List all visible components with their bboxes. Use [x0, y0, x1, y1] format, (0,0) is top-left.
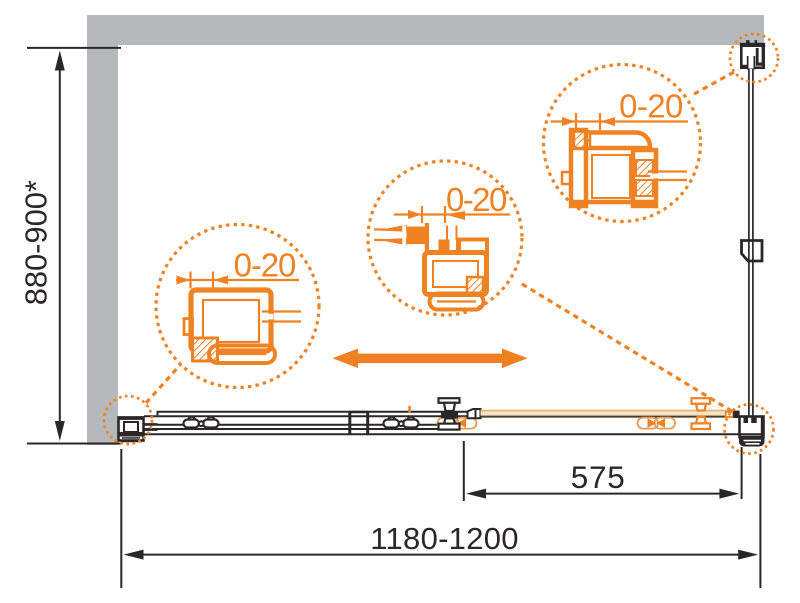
svg-text:1180-1200: 1180-1200: [370, 521, 518, 556]
svg-text:0-20: 0-20: [619, 88, 683, 125]
svg-text:880-900*: 880-900*: [18, 180, 53, 305]
svg-text:575: 575: [571, 459, 625, 495]
svg-text:0-20: 0-20: [446, 181, 507, 218]
svg-text:0-20: 0-20: [234, 247, 297, 284]
